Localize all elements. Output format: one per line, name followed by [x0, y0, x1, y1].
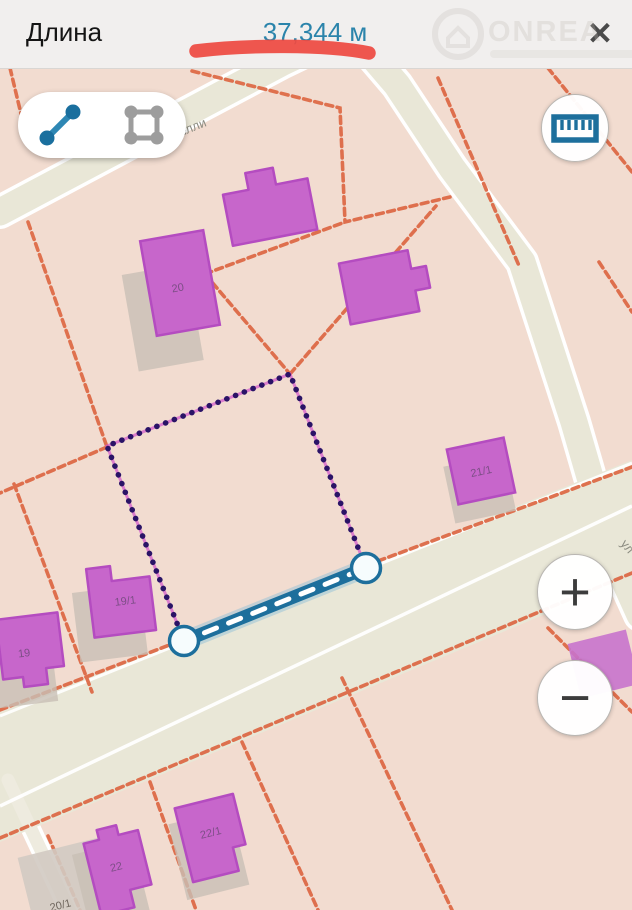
map-canvas[interactable]: 20 21/1 19/1 19 20/1 [0, 68, 632, 910]
red-underline-annotation [0, 0, 632, 68]
polygon-measure-icon [116, 97, 172, 153]
ruler-button[interactable] [541, 94, 609, 162]
measure-handle-start[interactable] [170, 627, 199, 656]
zoom-out-button[interactable]: − [537, 660, 613, 736]
zoom-in-button[interactable]: + [537, 554, 613, 630]
measure-area-button[interactable] [116, 97, 172, 153]
header-bar: ONREA Длина 37,344 м ✕ [0, 0, 632, 69]
ruler-icon [548, 104, 602, 152]
measure-distance-button[interactable] [32, 97, 88, 153]
building-label-19: 19 [17, 647, 31, 660]
measure-tool-switcher [18, 92, 186, 158]
line-measure-icon [32, 97, 88, 153]
measure-handle-end[interactable] [352, 554, 381, 583]
building-label-20: 20 [171, 281, 185, 295]
app-screen: 20 21/1 19/1 19 20/1 [0, 0, 632, 910]
